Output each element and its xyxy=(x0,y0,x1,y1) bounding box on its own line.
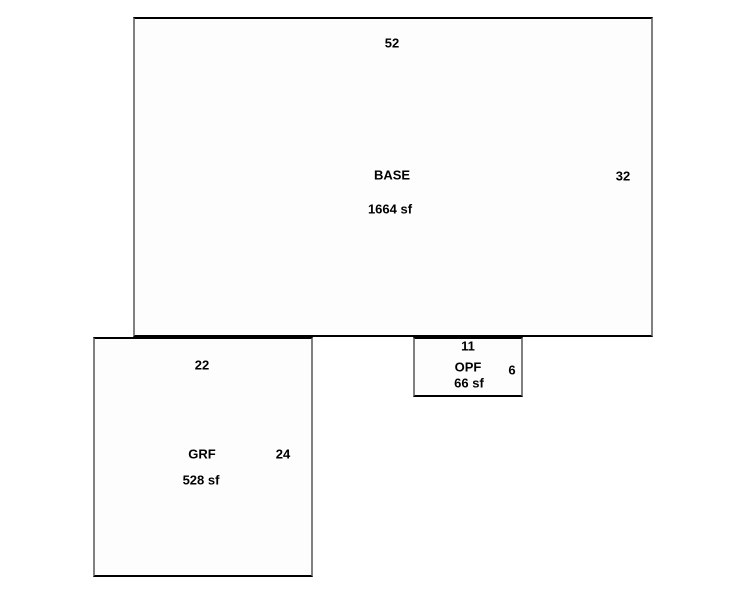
opf-right-dimension: 6 xyxy=(508,364,515,377)
opf-area-label: OPF xyxy=(455,361,482,374)
grf-top-dimension: 22 xyxy=(195,359,209,372)
opf-sqft-label: 66 sf xyxy=(454,377,484,390)
grf-sqft-label: 528 sf xyxy=(183,474,220,487)
base-area-label: BASE xyxy=(374,169,410,182)
base-right-dimension: 32 xyxy=(616,170,630,183)
floorplan-sketch-canvas: 52 BASE 1664 sf 32 22 GRF 24 528 sf 11 O… xyxy=(0,0,746,595)
grf-right-dimension: 24 xyxy=(276,448,290,461)
grf-area-label: GRF xyxy=(188,448,215,461)
opf-top-dimension: 11 xyxy=(461,340,475,353)
base-top-dimension: 52 xyxy=(385,37,399,50)
base-sqft-label: 1664 sf xyxy=(368,203,412,216)
